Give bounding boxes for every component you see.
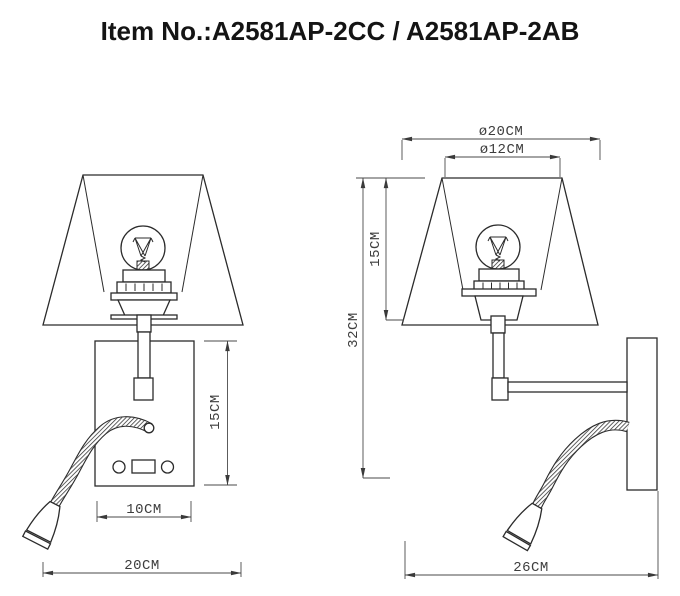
- dim-label-shade-top-diameter: ø12CM: [480, 142, 525, 158]
- dim-label-overall-height: 32CM: [346, 312, 362, 348]
- dim-label-overall-width: 20CM: [124, 558, 160, 574]
- dim-label-plate-height: 15CM: [208, 394, 224, 430]
- side-view: ø20CM ø12CM 32CM 15CM 26CM: [346, 124, 658, 579]
- shade-inner-edge-right: [541, 178, 562, 290]
- wall-plate-side: [627, 338, 657, 490]
- shade-inner-edge-left: [442, 178, 463, 290]
- gooseneck-mount-cap: [144, 423, 154, 433]
- stem-front: [138, 332, 150, 378]
- switch-button-right: [162, 461, 174, 473]
- elbow-block: [492, 378, 508, 400]
- stem-side: [493, 333, 504, 378]
- bulb-base: [137, 261, 149, 270]
- socket-block: [123, 270, 165, 282]
- dim-label-plate-width: 10CM: [126, 502, 162, 518]
- bulb-base: [492, 260, 504, 269]
- wall-arm: [508, 382, 627, 392]
- socket-nub: [137, 315, 151, 332]
- socket-nub: [491, 316, 505, 333]
- gooseneck-arm-side: [537, 425, 628, 506]
- stem-junction: [134, 378, 153, 400]
- technical-drawing-page: Item No.:A2581AP-2CC / A2581AP-2AB: [0, 0, 680, 596]
- switch-rocker: [132, 460, 155, 473]
- front-view: 15CM 10CM 20CM: [23, 175, 243, 577]
- lamp-dimension-drawing: 15CM 10CM 20CM: [0, 0, 680, 596]
- socket-flange: [111, 293, 177, 300]
- socket-flange: [462, 289, 536, 296]
- reading-spotlight-head-front: [23, 498, 68, 549]
- dim-label-shade-bottom-diameter: ø20CM: [479, 124, 524, 140]
- dim-label-overall-depth: 26CM: [513, 560, 549, 576]
- shade-inner-edge-right: [182, 175, 203, 292]
- dim-label-shade-height: 15CM: [368, 231, 384, 267]
- switch-button-left: [113, 461, 125, 473]
- gooseneck-arm-front: [55, 421, 154, 504]
- shade-inner-edge-left: [83, 175, 104, 292]
- socket-block: [479, 269, 519, 281]
